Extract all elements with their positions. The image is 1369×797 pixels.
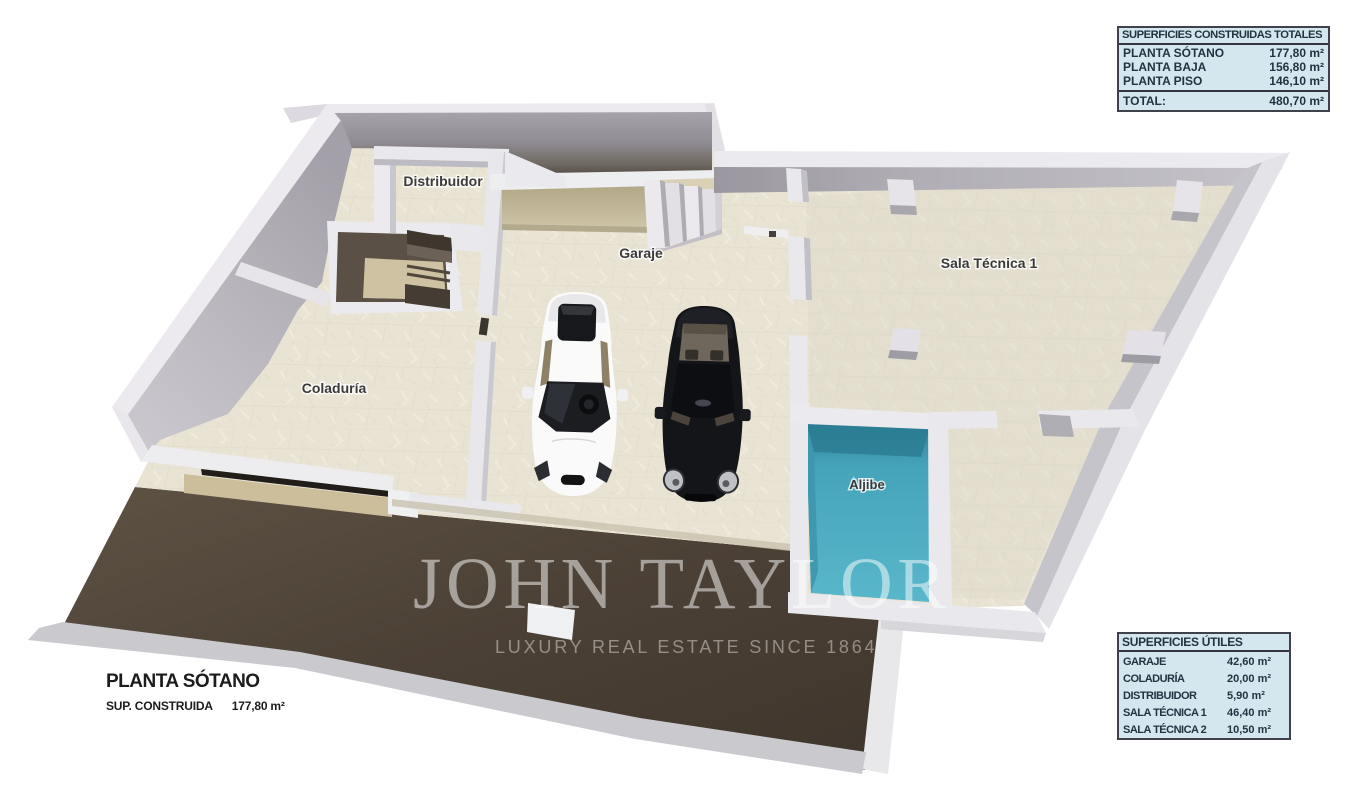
svg-text:Distribuidor: Distribuidor (403, 173, 483, 189)
svg-text:Sala Técnica 1: Sala Técnica 1 (941, 255, 1038, 271)
svg-text:Coladuría: Coladuría (302, 380, 367, 396)
svg-text:JOHN TAYLOR: JOHN TAYLOR (413, 543, 951, 624)
svg-text:LUXURY REAL ESTATE SINCE 1864: LUXURY REAL ESTATE SINCE 1864 (495, 637, 877, 657)
svg-text:Aljibe: Aljibe (849, 477, 884, 492)
svg-text:Garaje: Garaje (619, 245, 663, 261)
